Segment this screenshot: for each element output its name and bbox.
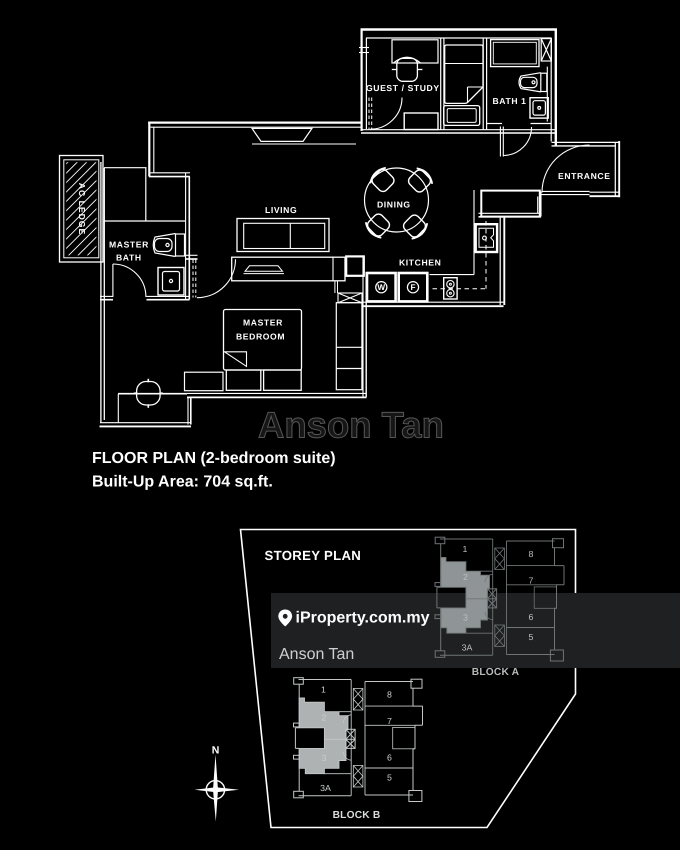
svg-text:MASTER: MASTER <box>109 240 149 250</box>
svg-text:BLOCK A: BLOCK A <box>472 667 520 678</box>
svg-text:BATH 1: BATH 1 <box>493 96 527 106</box>
svg-text:Built-Up Area: 704 sq.ft.: Built-Up Area: 704 sq.ft. <box>92 474 273 491</box>
svg-text:STOREY PLAN: STOREY PLAN <box>265 548 362 563</box>
svg-text:BEDROOM: BEDROOM <box>236 332 285 342</box>
svg-text:F: F <box>410 283 415 292</box>
svg-text:KITCHEN: KITCHEN <box>399 258 441 268</box>
svg-text:GUEST / STUDY: GUEST / STUDY <box>366 83 440 93</box>
svg-text:BLOCK B: BLOCK B <box>333 810 381 821</box>
svg-text:MASTER: MASTER <box>243 318 283 328</box>
svg-text:BATH: BATH <box>116 253 142 263</box>
svg-text:FLOOR PLAN (2-bedroom suite): FLOOR PLAN (2-bedroom suite) <box>92 450 336 467</box>
svg-text:Anson Tan: Anson Tan <box>258 405 444 446</box>
svg-text:W: W <box>377 283 385 292</box>
svg-text:LIVING: LIVING <box>265 205 297 215</box>
svg-text:N: N <box>212 745 220 757</box>
svg-text:ENTRANCE: ENTRANCE <box>558 171 611 181</box>
svg-text:DINING: DINING <box>377 200 411 210</box>
svg-text:Anson Tan: Anson Tan <box>279 646 354 663</box>
svg-text:AC LEDGE: AC LEDGE <box>77 183 87 235</box>
svg-text:iProperty.com.my: iProperty.com.my <box>296 610 430 627</box>
